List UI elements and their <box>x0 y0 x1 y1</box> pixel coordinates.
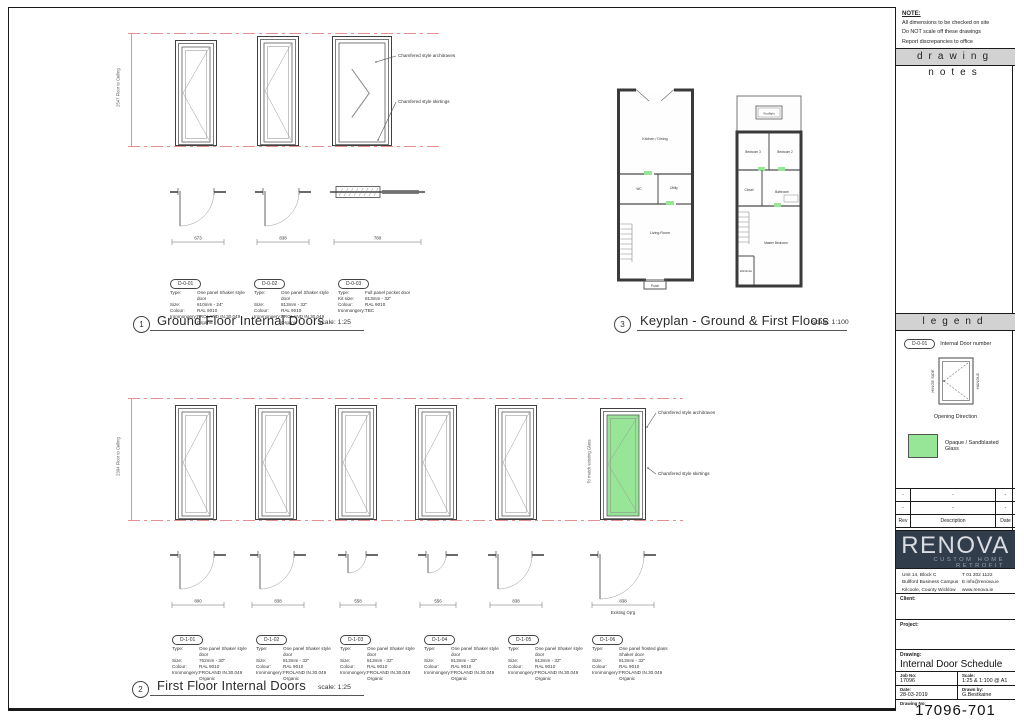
title-underline-ground <box>150 330 364 331</box>
door-spec-row: Type:One panel Shaker style door <box>424 646 508 658</box>
svg-text:673: 673 <box>194 236 202 241</box>
svg-text:780: 780 <box>374 236 382 241</box>
svg-text:838: 838 <box>512 599 520 604</box>
annotation-architraves-first: Chamfered style architraves <box>658 410 715 415</box>
company-address-block: Unit 14, Block C Bullford Business Campu… <box>896 568 1015 593</box>
title-block-panel: NOTE: All dimensions to be checked on si… <box>895 7 1015 711</box>
door-spec-row: Ironmongery:FROLAND IN.30.049 Organic <box>508 670 592 682</box>
door-elevation <box>175 405 217 525</box>
revision-header-description: Description <box>911 515 996 528</box>
section-title-first: First Floor Internal Doors <box>157 678 306 693</box>
drawing-title: Internal Door Schedule <box>896 658 1015 670</box>
door-spec-row: Type:One panel Shaker style door <box>508 646 592 658</box>
contact-line: T 01 202 1122 <box>962 572 999 579</box>
svg-text:838: 838 <box>619 599 627 604</box>
hinge-side-label: HINGE SIDE <box>930 369 935 392</box>
door-label: D-0-03Type:Full panel pocket doorKit siz… <box>338 272 422 314</box>
svg-text:Utility: Utility <box>670 186 678 190</box>
door-elevation <box>175 40 217 151</box>
door-plan: 838 <box>488 545 544 628</box>
door-spec-row: Type:One panel Shaker style door <box>170 290 254 302</box>
revision-cell: - <box>996 489 1015 502</box>
door-tag: D-0-02 <box>254 279 285 289</box>
door-label: D-1-05Type:One panel Shaker style doorSi… <box>508 628 592 682</box>
door-plan: 673 <box>170 182 226 265</box>
svg-text:Porch: Porch <box>651 284 660 288</box>
opening-direction-diagram: HINGE SIDE HANDLE <box>901 355 1011 413</box>
svg-text:800: 800 <box>194 599 202 604</box>
door-tag: D-0-01 <box>170 279 201 289</box>
svg-text:Wardrobe: Wardrobe <box>740 269 753 273</box>
door-tag: D-0-03 <box>338 279 369 289</box>
project-label: Project: <box>896 620 1015 628</box>
glass-match-note: To match existing Glass <box>587 422 592 502</box>
svg-text:Rooflight: Rooflight <box>763 112 774 116</box>
revision-cell: - <box>996 502 1015 515</box>
door-spec-row: Type:One panel Shaker style door <box>172 646 256 658</box>
opening-direction-caption: Opening Direction <box>896 414 1015 420</box>
keyplan-ground-floor: Kitchen / DiningWCUtilityLiving RoomPorc… <box>616 84 694 297</box>
door-tag: D-1-05 <box>508 635 539 645</box>
door-tag: D-1-06 <box>592 635 623 645</box>
job-no-value: 17096 <box>900 678 957 684</box>
door-tag: D-1-04 <box>424 635 455 645</box>
section-scale-ground: scale: 1:25 <box>318 319 351 326</box>
svg-text:Bedroom 2: Bedroom 2 <box>777 150 793 154</box>
drawing-notes-band: drawing notes <box>896 48 1015 66</box>
drawn-by-cell: Drawn by: G.Bestkaine <box>958 686 1015 699</box>
drawing-number-label: Drawing No: <box>900 701 926 706</box>
keyplan-first-floor: RooflightBedroom 3Bedroom 2ClosetBathroo… <box>734 94 804 297</box>
section-scale-first: scale: 1:25 <box>318 684 351 691</box>
door-spec-row: Type:One panel Shaker style door <box>256 646 340 658</box>
job-no-cell: Job No: 17096 <box>896 672 958 685</box>
drawing-sheet: 2547 Floor to Ceiling 673838780 D-0-01Ty… <box>0 0 1024 723</box>
door-elevation <box>332 36 392 151</box>
revision-table: - - - - - - Rev Description Date <box>896 488 1015 528</box>
annotation-architraves-ground: Chamfered style architraves <box>398 53 455 58</box>
door-tag: D-1-02 <box>256 635 287 645</box>
annotation-skirtings-first: Chamfered style skirtings <box>658 471 710 476</box>
svg-text:WC: WC <box>636 187 642 191</box>
address-line: Bullford Business Campus <box>902 579 962 586</box>
svg-text:Master Bedroom: Master Bedroom <box>764 241 788 245</box>
note-line: Report discrepancies to office <box>902 38 1009 47</box>
door-elevation <box>415 405 457 525</box>
door-spec-row: Ironmongery:FROLAND IN.30.049 Organic <box>340 670 424 682</box>
first-height-note: 2394 Floor to Ceiling <box>116 417 121 497</box>
door-plan: 780 <box>330 182 425 265</box>
note-line: Do NOT scale off these drawings <box>902 28 1009 37</box>
door-spec-row: Type:One panel Shaker style door <box>254 290 338 302</box>
section-number-ground: 1 <box>133 316 150 333</box>
first-ceiling-datum-line <box>128 398 683 399</box>
legend-door-tag: D-0-01 <box>904 339 935 349</box>
client-label: Client: <box>896 594 1015 602</box>
note-line: All dimensions to be checked on site <box>902 19 1009 28</box>
svg-text:Kitchen / Dining: Kitchen / Dining <box>642 137 667 141</box>
section-title-keyplan: Keyplan - Ground & First Floors <box>640 313 829 328</box>
date-value: 28-03-2019 <box>900 692 957 698</box>
door-elevation <box>495 405 537 525</box>
door-plan: 558 <box>338 545 378 628</box>
renova-logo: RENOVA <box>896 535 1015 557</box>
legend-band: legend <box>896 313 1015 331</box>
revision-cell: - <box>911 502 996 515</box>
notes-heading: NOTE: <box>902 11 1009 17</box>
project-box: Project: <box>896 619 1015 649</box>
scale-value: 1:25 & 1:100 @ A1 <box>962 678 1015 684</box>
revision-header-date: Date <box>996 515 1015 528</box>
door-spec-row: Type:One panel Shaker style door <box>340 646 424 658</box>
door-plan: 838Existing Op'g <box>590 545 656 628</box>
svg-text:Closet: Closet <box>744 188 753 192</box>
svg-text:Existing Op'g: Existing Op'g <box>611 610 636 615</box>
door-plan: 838 <box>255 182 311 265</box>
legend-door-tag-label: Internal Door number <box>940 341 991 347</box>
door-plan: 556 <box>418 545 458 628</box>
section-scale-keyplan: scale: 1:100 <box>812 319 849 326</box>
door-spec-row: Ironmongery:FROLAND IN.30.049 Organic <box>424 670 508 682</box>
door-spec-row: Type:One panel frosted glass Shaker door <box>592 646 676 658</box>
door-label: D-1-06Type:One panel frosted glass Shake… <box>592 628 676 682</box>
section-number-keyplan: 3 <box>614 316 631 333</box>
door-tag: D-1-03 <box>340 635 371 645</box>
door-label: D-1-02Type:One panel Shaker style doorSi… <box>256 628 340 682</box>
revision-header-rev: Rev <box>896 515 911 528</box>
scale-cell: Scale: 1:25 & 1:100 @ A1 <box>958 672 1015 685</box>
first-height-dimension-line <box>131 398 132 520</box>
door-label: D-1-04Type:One panel Shaker style doorSi… <box>424 628 508 682</box>
door-elevation <box>255 405 297 525</box>
svg-text:838: 838 <box>274 599 282 604</box>
job-scale-row: Job No: 17096 Scale: 1:25 & 1:100 @ A1 <box>896 671 1015 685</box>
revision-cell: - <box>896 489 911 502</box>
door-plan: 800 <box>170 545 226 628</box>
title-underline-keyplan <box>637 330 847 331</box>
door-spec-row: Ironmongery:TBC <box>338 308 422 314</box>
address-line: Unit 14, Block C <box>902 572 962 579</box>
door-elevation <box>257 36 299 151</box>
company-logo-block: RENOVA CUSTOM HOME RETROFIT <box>896 530 1015 568</box>
glass-swatch-label: Opaque / Sandblasted Glass <box>945 440 1007 452</box>
legend: D-0-01 Internal Door number HINGE SIDE H… <box>896 331 1015 458</box>
contact-line: E info@renova.ie <box>962 579 999 586</box>
drawing-number-box: Drawing No: 17096-701 <box>896 699 1015 718</box>
svg-text:558: 558 <box>354 599 362 604</box>
client-box: Client: <box>896 593 1015 619</box>
glass-swatch <box>908 434 938 458</box>
ground-height-dimension-line <box>131 33 132 146</box>
door-label: D-1-01Type:One panel Shaker style doorSi… <box>172 628 256 682</box>
svg-text:556: 556 <box>434 599 442 604</box>
section-number-first: 2 <box>132 681 149 698</box>
revision-cell: - <box>896 502 911 515</box>
door-elevation <box>600 408 646 525</box>
door-spec-row: Ironmongery:FROLAND IN.30.049 Organic <box>592 670 676 682</box>
legend-glass-row: Opaque / Sandblasted Glass <box>908 434 1015 458</box>
door-elevation <box>335 405 377 525</box>
svg-text:838: 838 <box>279 236 287 241</box>
title-underline-first <box>150 695 364 696</box>
drawing-title-box: Drawing: Internal Door Schedule <box>896 649 1015 671</box>
door-label: D-1-03Type:One panel Shaker style doorSi… <box>340 628 424 682</box>
ground-ceiling-datum-line <box>128 33 443 34</box>
ground-height-note: 2547 Floor to Ceiling <box>116 48 121 128</box>
svg-text:Bathroom: Bathroom <box>775 190 789 194</box>
date-cell: Date: 28-03-2019 <box>896 686 958 699</box>
section-title-ground: Ground Floor Internal Doors <box>157 313 324 328</box>
door-tag: D-1-01 <box>172 635 203 645</box>
drawing-label: Drawing: <box>896 650 1015 658</box>
date-drawn-row: Date: 28-03-2019 Drawn by: G.Bestkaine <box>896 685 1015 699</box>
legend-door-number-row: D-0-01 Internal Door number <box>904 339 1015 349</box>
door-plan: 838 <box>250 545 306 628</box>
svg-text:Living Room: Living Room <box>650 231 670 235</box>
contact-column: T 01 202 1122 E info@renova.ie www.renov… <box>962 572 999 590</box>
revision-cell: - <box>911 489 996 502</box>
drawn-by-value: G.Bestkaine <box>962 692 1015 698</box>
notes-box: NOTE: All dimensions to be checked on si… <box>896 7 1015 48</box>
annotation-skirtings-ground: Chamfered style skirtings <box>398 99 450 104</box>
address-column: Unit 14, Block C Bullford Business Campu… <box>902 572 962 590</box>
svg-text:Bedroom 3: Bedroom 3 <box>745 150 761 154</box>
handle-label: HANDLE <box>975 373 980 390</box>
